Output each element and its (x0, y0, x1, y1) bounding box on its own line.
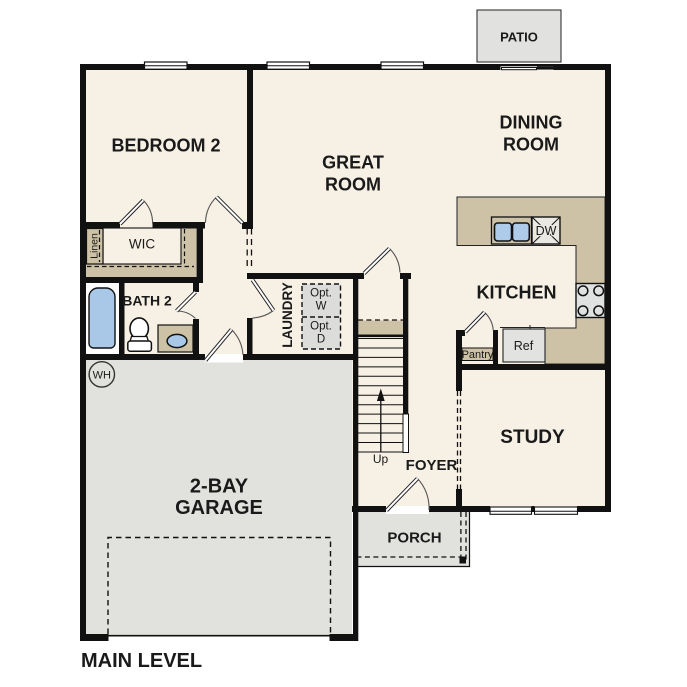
svg-text:FOYER: FOYER (406, 457, 458, 474)
svg-text:STUDY: STUDY (500, 427, 565, 448)
svg-text:Up: Up (373, 452, 389, 466)
svg-text:Ref: Ref (514, 339, 534, 353)
svg-text:WIC: WIC (129, 237, 155, 252)
svg-text:ROOM: ROOM (503, 135, 559, 155)
svg-text:BEDROOM 2: BEDROOM 2 (111, 136, 220, 156)
svg-text:Opt.: Opt. (310, 321, 332, 333)
svg-text:2-BAY: 2-BAY (190, 476, 249, 498)
svg-text:W: W (316, 301, 327, 313)
svg-text:PORCH: PORCH (387, 530, 441, 547)
svg-text:GREAT: GREAT (322, 153, 384, 173)
svg-text:GARAGE: GARAGE (175, 497, 263, 519)
svg-text:Opt.: Opt. (310, 288, 332, 300)
svg-text:PATIO: PATIO (500, 30, 538, 45)
svg-text:KITCHEN: KITCHEN (477, 282, 557, 302)
svg-text:D: D (317, 334, 325, 346)
svg-text:ROOM: ROOM (325, 175, 381, 195)
svg-text:MAIN LEVEL: MAIN LEVEL (81, 650, 202, 672)
svg-text:LAUNDRY: LAUNDRY (280, 282, 295, 348)
svg-text:BATH 2: BATH 2 (122, 293, 172, 309)
svg-text:Linen: Linen (89, 233, 101, 259)
svg-text:DW: DW (536, 224, 557, 238)
svg-text:WH: WH (93, 370, 111, 382)
svg-text:Pantry: Pantry (462, 349, 494, 361)
svg-text:DINING: DINING (500, 113, 563, 133)
